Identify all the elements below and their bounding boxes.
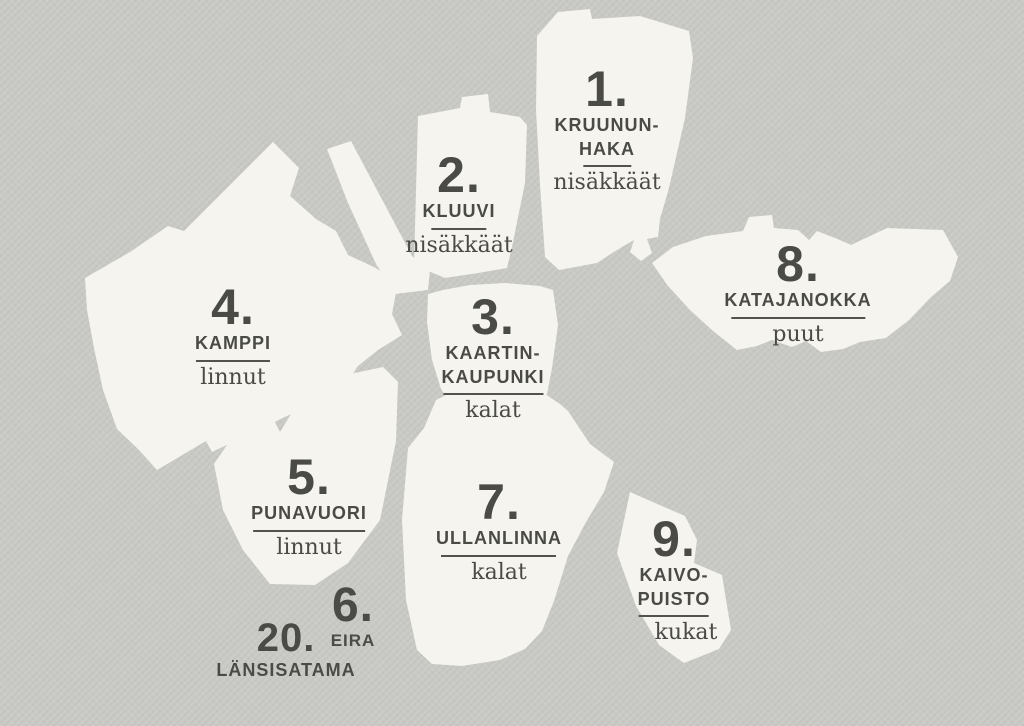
region-name-line1: KAIVO- [638, 565, 711, 586]
region-category: kalat [436, 561, 562, 585]
region-name-line1: PUNAVUORI [251, 503, 367, 524]
region-name-line2: KAUPUNKI [441, 367, 544, 388]
label-underline [196, 360, 270, 362]
region-category: linnut [251, 536, 367, 560]
region-number: 1. [553, 66, 660, 112]
region-number: 7. [436, 479, 562, 525]
region-label-lansisatama: 20. LÄNSISATAMA [216, 620, 355, 680]
region-name-line1: LÄNSISATAMA [216, 660, 355, 681]
label-underline [731, 317, 865, 319]
label-underline [441, 555, 556, 557]
region-number: 4. [195, 284, 271, 330]
region-name-line1: KAARTIN- [441, 343, 544, 364]
label-underline [443, 393, 543, 395]
region-name-line2: HAKA [553, 139, 660, 160]
region-name-line1: KAMPPI [195, 333, 271, 354]
label-underline [583, 165, 631, 167]
label-underline [253, 530, 365, 532]
region-category: linnut [195, 366, 271, 390]
region-label-ullanlinna: 7. ULLANLINNA kalat [436, 479, 562, 585]
region-number: 2. [405, 152, 512, 198]
region-number: 5. [251, 454, 367, 500]
region-label-katajanokka: 8. KATAJANOKKA puut [724, 241, 871, 347]
region-category: kalat [441, 399, 544, 423]
helsinki-district-map-poster: 1. KRUUNUN- HAKA nisäkkäät 2. KLUUVI nis… [0, 0, 1024, 726]
label-underline [639, 615, 709, 617]
region-label-kruununhaka: 1. KRUUNUN- HAKA nisäkkäät [553, 66, 660, 196]
region-category: nisäkkäät [553, 171, 660, 195]
region-label-kaartinkaupunki: 3. KAARTIN- KAUPUNKI kalat [441, 294, 544, 424]
region-name-line1: KRUUNUN- [553, 115, 660, 136]
region-label-kamppi: 4. KAMPPI linnut [195, 284, 271, 390]
region-category: nisäkkäät [405, 234, 512, 258]
region-name-line1: ULLANLINNA [436, 528, 562, 549]
region-label-kaivopuisto: 9. KAIVO- PUISTO kukat [638, 516, 711, 646]
region-number: 3. [441, 294, 544, 340]
region-number: 9. [638, 516, 711, 562]
region-label-kluuvi: 2. KLUUVI nisäkkäät [405, 152, 512, 258]
region-number: 8. [724, 241, 871, 287]
region-name-line1: KATAJANOKKA [724, 290, 871, 311]
region-category: kukat [650, 621, 723, 645]
region-name-line2: PUISTO [638, 589, 711, 610]
region-category: puut [724, 323, 871, 347]
region-number: 20. [216, 620, 355, 657]
region-name-line1: KLUUVI [405, 201, 512, 222]
label-underline [431, 228, 486, 230]
region-label-punavuori: 5. PUNAVUORI linnut [251, 454, 367, 560]
